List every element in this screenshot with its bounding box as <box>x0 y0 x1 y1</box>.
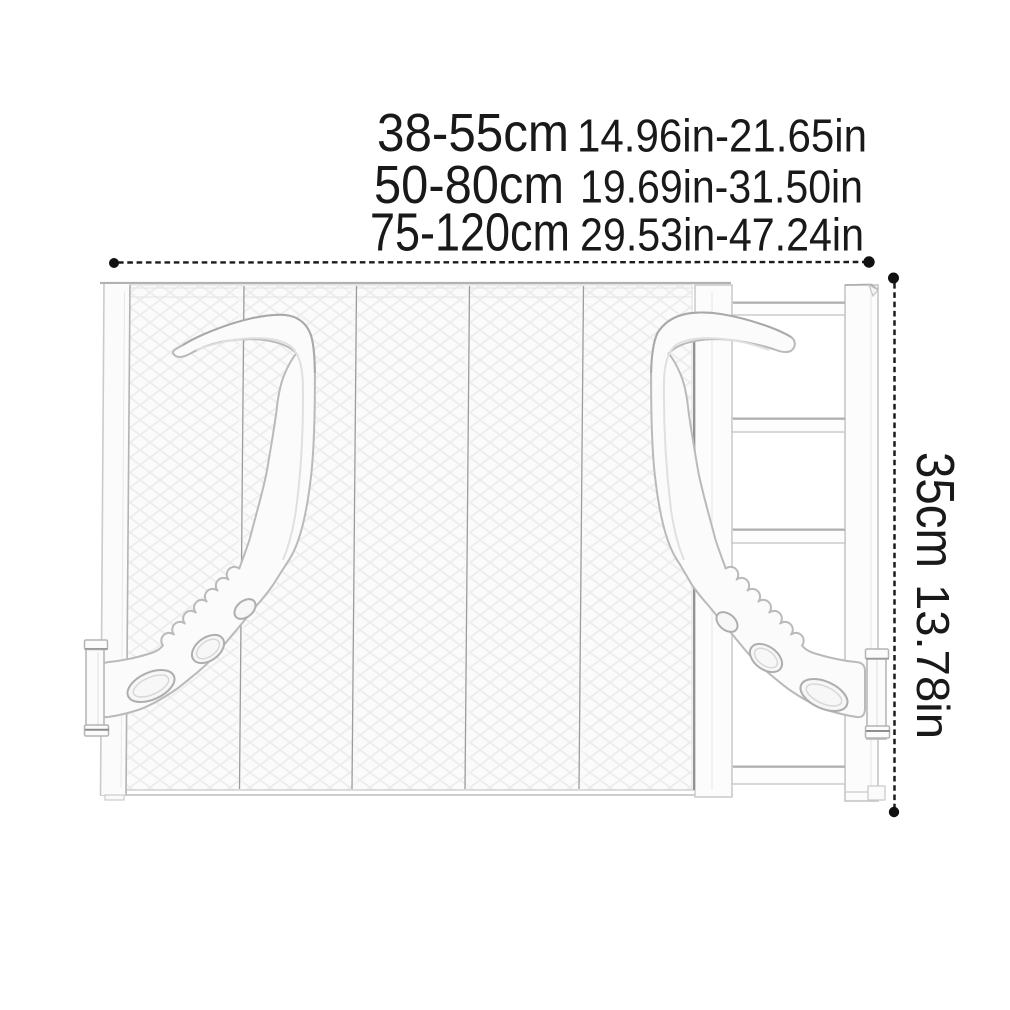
svg-text:14.96in-21.65in: 14.96in-21.65in <box>577 110 867 162</box>
svg-text:38-55cm: 38-55cm <box>377 103 569 163</box>
svg-text:35cm: 35cm <box>905 452 965 568</box>
svg-text:29.53in-47.24in: 29.53in-47.24in <box>580 209 864 261</box>
svg-text:13.78in: 13.78in <box>907 584 959 739</box>
svg-text:19.69in-31.50in: 19.69in-31.50in <box>580 161 863 213</box>
svg-text:75-120cm: 75-120cm <box>370 203 570 263</box>
